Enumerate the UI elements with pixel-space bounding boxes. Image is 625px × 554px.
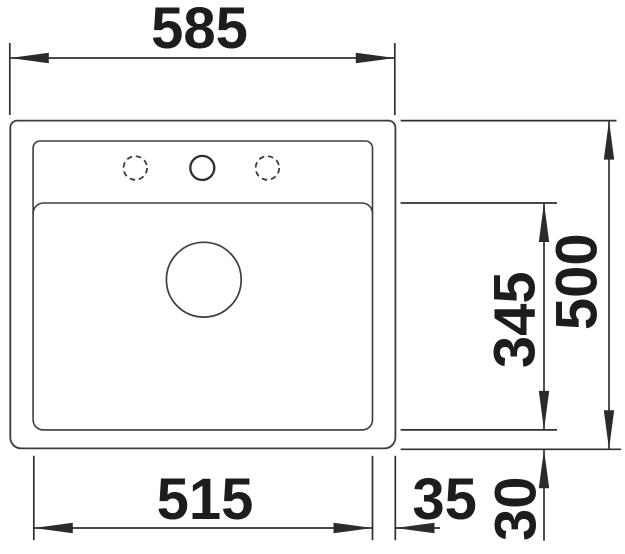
svg-text:515: 515 [157,467,254,532]
svg-text:30: 30 [483,477,548,542]
svg-text:345: 345 [483,271,548,368]
svg-text:35: 35 [412,467,477,532]
svg-text:500: 500 [545,233,610,330]
svg-text:585: 585 [151,0,248,61]
